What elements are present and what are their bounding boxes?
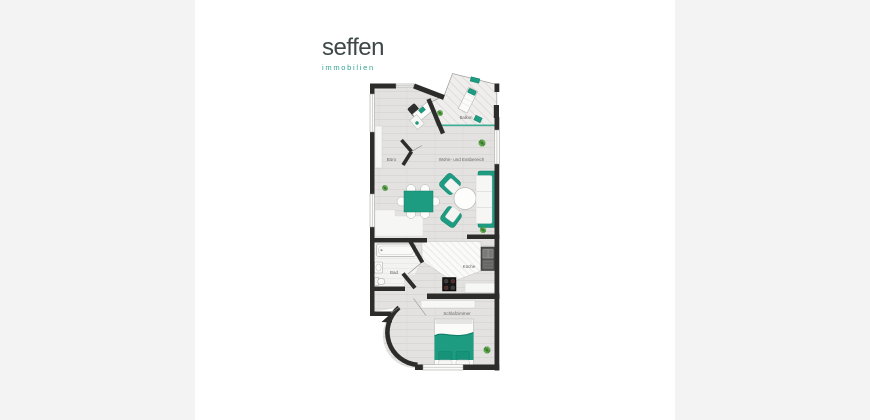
bathtub xyxy=(377,244,416,257)
room-label-balkon: Balkon xyxy=(460,115,473,120)
floor-plan: Balkon Büro Wohn- und Essbereich Bad Küc… xyxy=(365,64,512,394)
sideboard xyxy=(375,126,382,168)
round-table xyxy=(454,188,476,210)
page-background: { "brand": { "name": "seffen", "tagline"… xyxy=(0,0,870,420)
floor-plan-svg: Balkon Büro Wohn- und Essbereich Bad Küc… xyxy=(365,64,512,394)
double-bed xyxy=(435,319,474,366)
toilet xyxy=(375,278,385,286)
bed-footboard xyxy=(436,320,473,324)
kitchen-lower-counter xyxy=(465,283,495,293)
dining-table xyxy=(404,191,433,212)
room-label-bad: Bad xyxy=(390,270,399,275)
room-label-buero: Büro xyxy=(387,157,397,162)
sofa xyxy=(476,171,497,228)
room-label-wohnen: Wohn- und Essbereich xyxy=(439,157,485,162)
bedroom-dresser xyxy=(421,301,475,309)
room-label-kueche: Küche xyxy=(463,264,476,269)
stove xyxy=(443,278,457,292)
canvas: seffen immobilien xyxy=(195,0,675,420)
room-label-schlafzimmer: Schlafzimmer xyxy=(443,311,471,316)
kitchen-sink-unit xyxy=(481,247,495,271)
brand-name: seffen xyxy=(322,36,384,60)
bathroom-sink xyxy=(375,262,383,273)
bed-cushion-right xyxy=(456,352,470,360)
bed-cushion-left xyxy=(439,352,453,360)
